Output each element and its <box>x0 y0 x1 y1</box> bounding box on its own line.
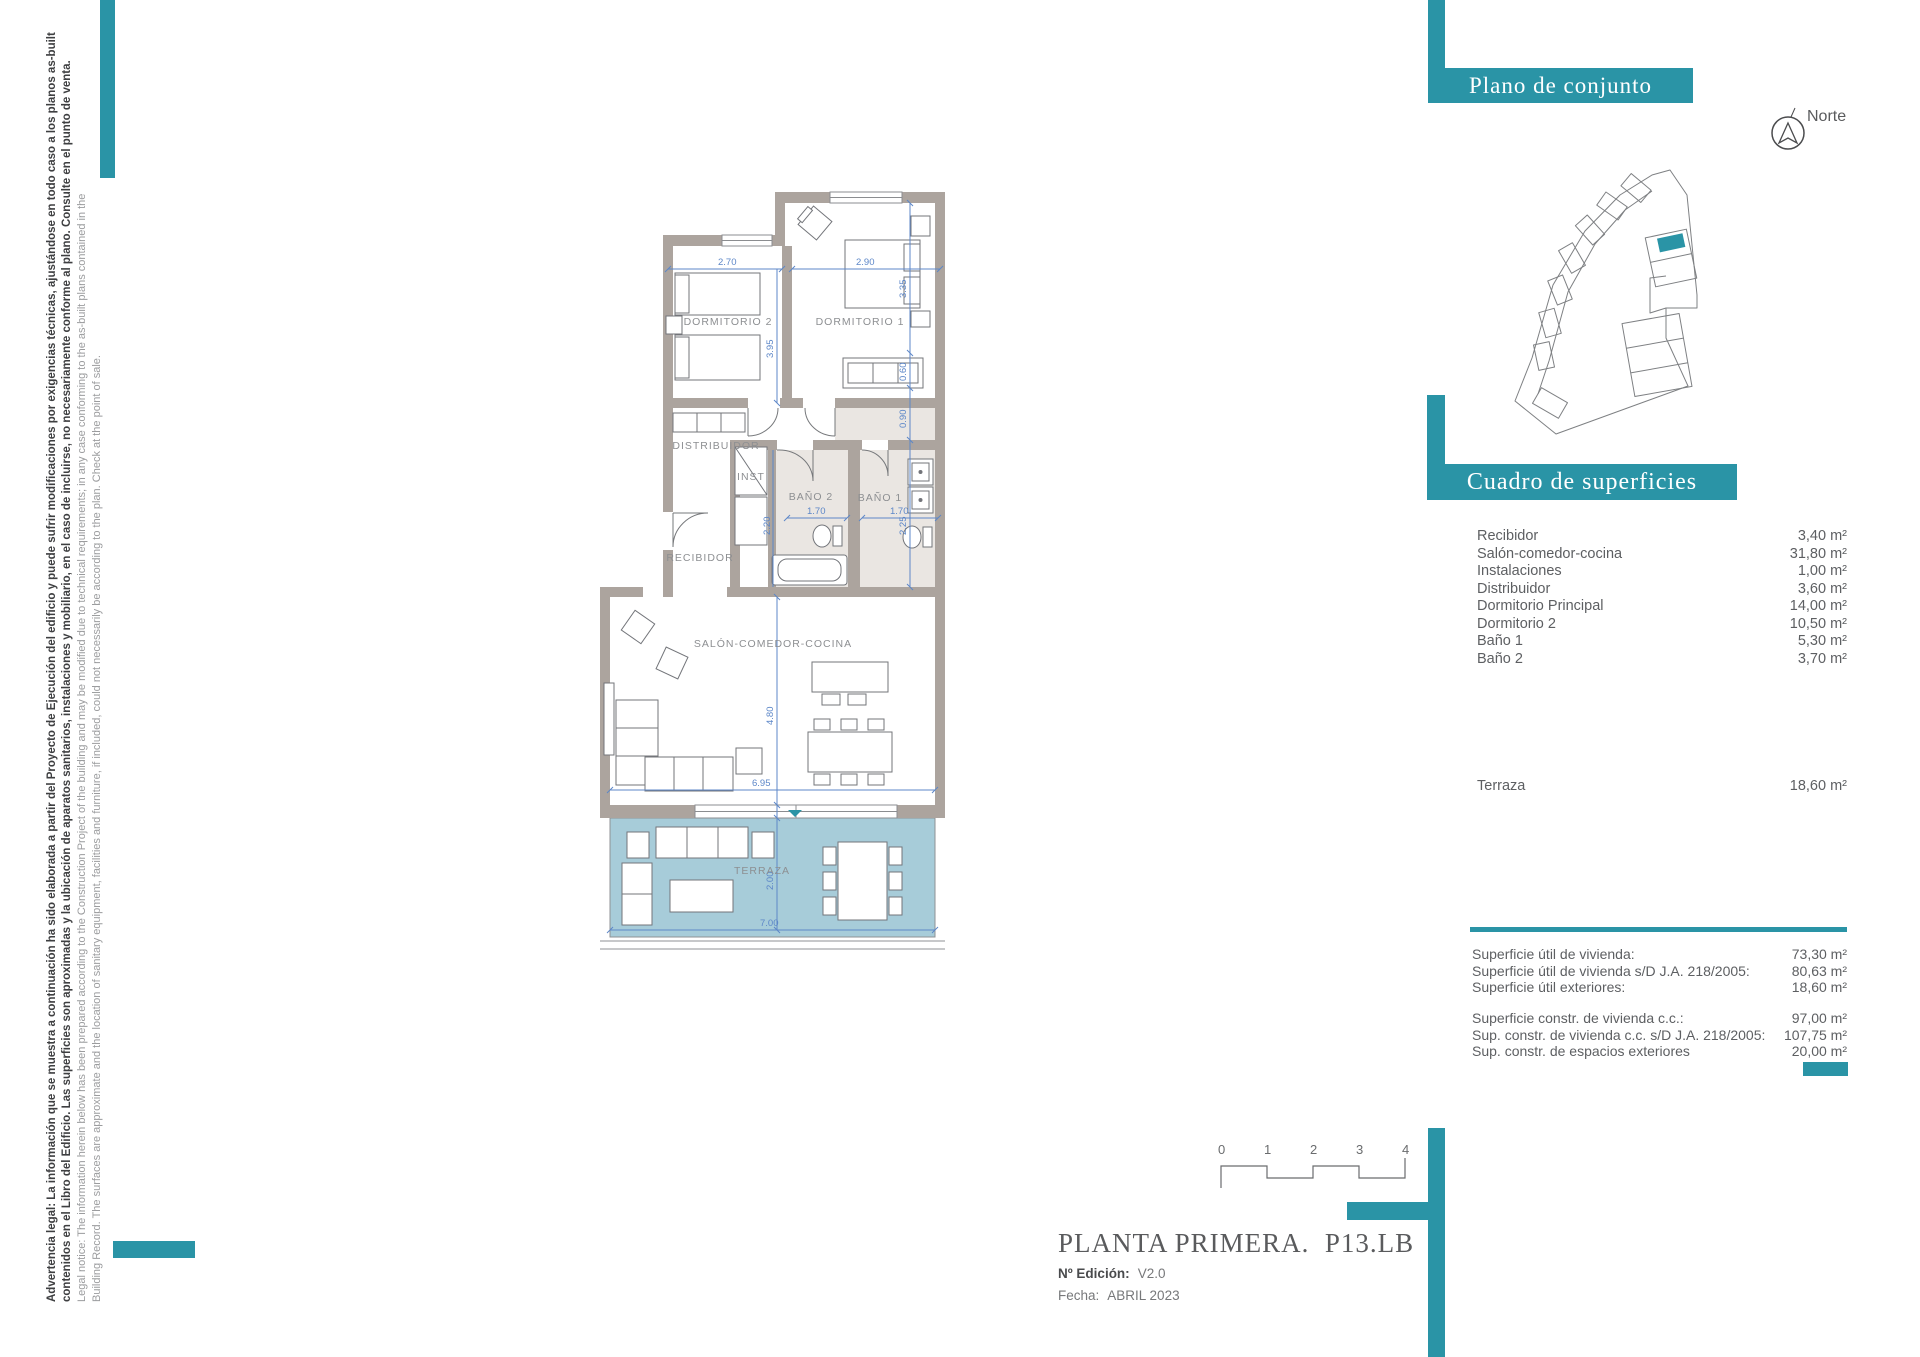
legal-disclaimer: Advertencia legal: La información que se… <box>45 32 105 1302</box>
table-row: Dormitorio Principal14,00 m² <box>1477 598 1847 616</box>
legal-line-en-1: Legal notice: The information herein bel… <box>75 32 90 1302</box>
summary-divider-rule <box>1470 927 1847 932</box>
svg-text:3.35: 3.35 <box>898 280 909 299</box>
site-plan <box>1500 158 1735 458</box>
svg-text:2.70: 2.70 <box>718 257 737 268</box>
svg-text:3: 3 <box>1356 1142 1363 1157</box>
cuadro-superficies-header: Cuadro de superficies <box>1427 464 1737 500</box>
svg-text:2.20: 2.20 <box>762 517 773 536</box>
svg-text:3.95: 3.95 <box>765 340 776 359</box>
edition-value: V2.0 <box>1138 1266 1166 1281</box>
svg-text:1.70: 1.70 <box>807 506 826 517</box>
svg-text:1: 1 <box>1264 1142 1271 1157</box>
svg-text:1.70: 1.70 <box>890 506 909 517</box>
accent-bar-bottom-right-horizontal <box>1347 1202 1428 1220</box>
legal-line-es-1: Advertencia legal: La información que se… <box>45 32 60 1302</box>
table-row: Salón-comedor-cocina31,80 m² <box>1477 546 1847 564</box>
room-label-bano1: BAÑO 1 <box>858 491 903 504</box>
table-row: Superficie útil exteriores:18,60 m² <box>1472 979 1847 996</box>
accent-bar-plano-conjunto <box>1428 0 1445 69</box>
table-row: Superficie constr. de vivienda c.c.:97,0… <box>1472 1010 1847 1027</box>
date-row: Fecha:ABRIL 2023 <box>1058 1288 1414 1303</box>
compass-needle-icon <box>1779 123 1797 143</box>
room-label-recibidor: RECIBIDOR <box>666 552 733 564</box>
summary-built-surfaces: Superficie constr. de vivienda c.c.:97,0… <box>1472 1010 1847 1060</box>
date-label: Fecha: <box>1058 1288 1099 1303</box>
north-label: Norte <box>1807 108 1846 125</box>
room-label-bano2: BAÑO 2 <box>789 490 834 503</box>
room-label-dormitorio1: DORMITORIO 1 <box>816 316 905 328</box>
table-row: Instalaciones1,00 m² <box>1477 563 1847 581</box>
date-value: ABRIL 2023 <box>1107 1288 1179 1303</box>
table-row: Distribuidor3,60 m² <box>1477 581 1847 599</box>
legal-line-en-2: Building Record. The surfaces are approx… <box>90 32 105 1302</box>
title-block: PLANTA PRIMERA. P13.LB Nº Edición:V2.0 F… <box>1058 1228 1414 1303</box>
north-compass: Norte <box>1765 102 1885 162</box>
surfaces-table: Recibidor3,40 m² Salón-comedor-cocina31,… <box>1477 528 1847 668</box>
svg-text:2.25: 2.25 <box>898 517 909 536</box>
accent-bar-bottom-right-vertical <box>1428 1128 1445 1357</box>
plano-conjunto-title: Plano de conjunto <box>1469 73 1652 99</box>
svg-text:4: 4 <box>1402 1142 1409 1157</box>
svg-text:6.95: 6.95 <box>752 778 771 789</box>
svg-text:4.80: 4.80 <box>765 707 776 726</box>
accent-bar-bottom-left <box>113 1241 195 1258</box>
plano-conjunto-header: Plano de conjunto <box>1428 68 1693 103</box>
table-row: Superficie útil de vivienda s/D J.A. 218… <box>1472 963 1847 980</box>
table-row: Sup. constr. de vivienda c.c. s/D J.A. 2… <box>1472 1027 1847 1044</box>
scale-bar: 0 1 2 3 4 <box>1213 1138 1418 1193</box>
plan-sheet: Plano de conjunto Cuadro de superficies … <box>0 0 1920 1357</box>
room-label-inst: INST <box>737 471 765 483</box>
table-row: Sup. constr. de espacios exteriores20,00… <box>1472 1043 1847 1060</box>
legal-line-es-2: contenidos en el Libro del Edificio. Las… <box>60 32 75 1302</box>
table-row: Baño 15,30 m² <box>1477 633 1847 651</box>
table-row: Baño 23,70 m² <box>1477 651 1847 669</box>
highlighted-unit <box>1657 233 1685 252</box>
edition-label: Nº Edición: <box>1058 1266 1130 1281</box>
accent-bar-summary <box>1803 1062 1848 1076</box>
room-label-salon: SALÓN-COMEDOR-COCINA <box>694 637 852 650</box>
room-label-dormitorio2: DORMITORIO 2 <box>684 316 773 328</box>
svg-text:2: 2 <box>1310 1142 1317 1157</box>
sheet-title: PLANTA PRIMERA. P13.LB <box>1058 1228 1414 1259</box>
svg-text:0.60: 0.60 <box>898 363 909 382</box>
room-label-distribuidor: DISTRIBUIDOR <box>672 440 759 452</box>
svg-text:0.90: 0.90 <box>898 410 909 429</box>
svg-text:0: 0 <box>1218 1142 1225 1157</box>
terraza-row: Terraza18,60 m² <box>1477 778 1847 796</box>
table-row: Dormitorio 210,50 m² <box>1477 616 1847 634</box>
table-row: Recibidor3,40 m² <box>1477 528 1847 546</box>
floor-plan: 2.70 2.90 3.95 3.35 0.60 0.90 2.25 2.20 … <box>590 185 955 955</box>
table-row: Superficie útil de vivienda:73,30 m² <box>1472 946 1847 963</box>
accent-bar-cuadro <box>1427 395 1445 465</box>
cuadro-superficies-title: Cuadro de superficies <box>1467 469 1697 496</box>
summary-useful-surfaces: Superficie útil de vivienda:73,30 m² Sup… <box>1472 946 1847 996</box>
svg-text:2.90: 2.90 <box>856 257 875 268</box>
edition-row: Nº Edición:V2.0 <box>1058 1266 1414 1281</box>
svg-text:7.00: 7.00 <box>760 918 779 929</box>
room-label-terraza: TERRAZA <box>734 865 790 877</box>
